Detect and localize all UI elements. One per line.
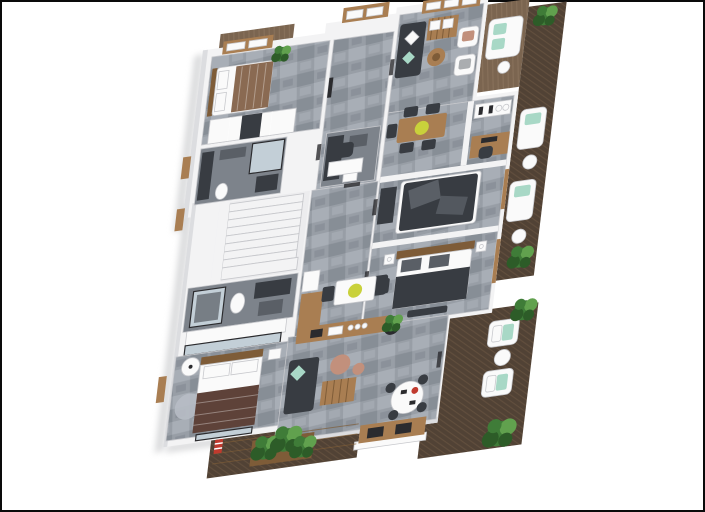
kitchen-chair1 [321, 286, 335, 303]
lounge-armchair1 [457, 25, 479, 48]
bath1-washer [255, 174, 279, 193]
bed1-pillow2 [214, 92, 226, 111]
master-nightstand [268, 348, 281, 360]
bed3-nightstand2 [476, 241, 487, 252]
floor-plan-canvas [0, 0, 705, 512]
floor-plan-render [0, 0, 705, 512]
bed1-pillow [217, 70, 229, 89]
bed3-nightstand1 [384, 254, 395, 265]
daybed-cushion2 [443, 18, 454, 28]
terrace-armchair2 [481, 368, 514, 398]
terrace-armchair1 [487, 318, 520, 348]
kitchen-chair2 [376, 278, 390, 295]
bath2-shower-floor [194, 292, 221, 323]
lounge-armchair2 [454, 53, 476, 76]
apartment-plan [141, 0, 577, 498]
side-balcony-lounger1 [516, 106, 547, 150]
kitchen-fridge [302, 270, 320, 292]
upper-balcony-sofa [485, 15, 524, 60]
side-balcony-lounger2 [506, 179, 537, 223]
daybed-cushion1 [430, 20, 441, 30]
kitchen-cooktop [328, 326, 343, 336]
staircase [210, 191, 306, 283]
bed2-fold2 [436, 196, 468, 215]
bedroom1-wardrobe-dark-section [239, 113, 262, 140]
bath1-shower [249, 139, 285, 173]
